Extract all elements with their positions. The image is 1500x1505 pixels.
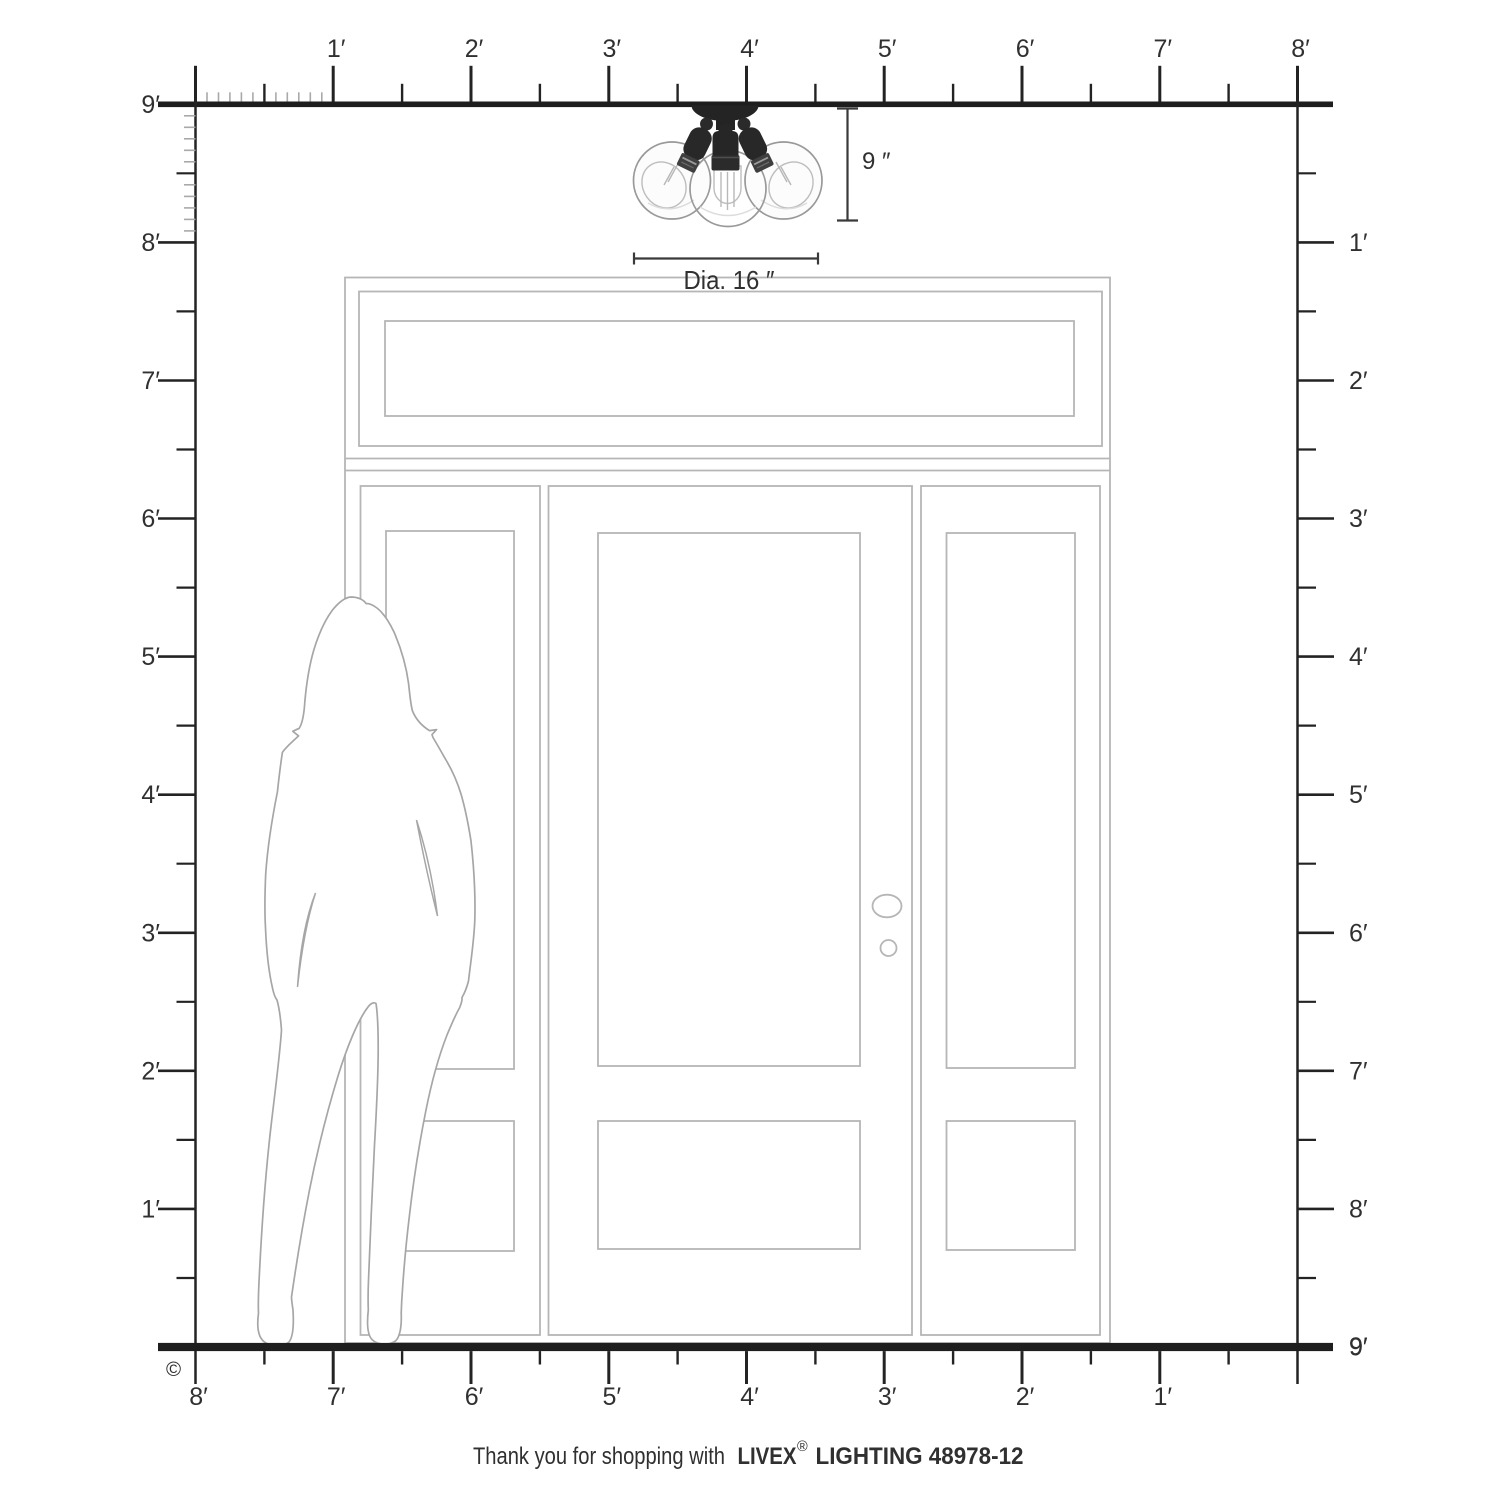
svg-text:9 ″: 9 ″ bbox=[862, 148, 891, 175]
svg-text:1′: 1′ bbox=[141, 1195, 160, 1223]
svg-text:7′: 7′ bbox=[1349, 1057, 1368, 1085]
svg-text:7′: 7′ bbox=[1154, 35, 1173, 63]
svg-text:7′: 7′ bbox=[141, 367, 160, 395]
svg-text:5′: 5′ bbox=[878, 35, 897, 63]
svg-text:6′: 6′ bbox=[1349, 919, 1368, 947]
svg-text:5′: 5′ bbox=[1349, 781, 1368, 809]
svg-text:9′: 9′ bbox=[1349, 1333, 1368, 1361]
svg-text:6′: 6′ bbox=[1016, 35, 1035, 63]
svg-text:1′: 1′ bbox=[1349, 229, 1368, 257]
svg-text:3′: 3′ bbox=[603, 35, 622, 63]
svg-text:®: ® bbox=[797, 1439, 808, 1455]
svg-text:2′: 2′ bbox=[465, 35, 484, 63]
svg-text:4′: 4′ bbox=[740, 1383, 759, 1411]
svg-text:5′: 5′ bbox=[141, 643, 160, 671]
svg-text:5′: 5′ bbox=[603, 1383, 622, 1411]
svg-text:8′: 8′ bbox=[1291, 35, 1310, 63]
svg-text:3′: 3′ bbox=[141, 919, 160, 947]
svg-text:8′: 8′ bbox=[189, 1383, 208, 1411]
svg-text:9′: 9′ bbox=[141, 91, 160, 119]
svg-text:LIGHTING 48978-12: LIGHTING 48978-12 bbox=[816, 1443, 1024, 1470]
svg-text:©: © bbox=[166, 1358, 181, 1381]
svg-text:7′: 7′ bbox=[327, 1383, 346, 1411]
svg-text:2′: 2′ bbox=[1016, 1383, 1035, 1411]
svg-text:4′: 4′ bbox=[141, 781, 160, 809]
svg-text:8′: 8′ bbox=[1349, 1195, 1368, 1223]
svg-text:Dia. 16 ″: Dia. 16 ″ bbox=[684, 265, 775, 295]
svg-text:6′: 6′ bbox=[465, 1383, 484, 1411]
svg-text:2′: 2′ bbox=[141, 1057, 160, 1085]
svg-text:1′: 1′ bbox=[327, 35, 346, 63]
svg-text:3′: 3′ bbox=[878, 1383, 897, 1411]
svg-text:3′: 3′ bbox=[1349, 505, 1368, 533]
svg-text:4′: 4′ bbox=[740, 35, 759, 63]
svg-text:LIVEX: LIVEX bbox=[738, 1443, 798, 1470]
svg-text:2′: 2′ bbox=[1349, 367, 1368, 395]
svg-text:1′: 1′ bbox=[1154, 1383, 1173, 1411]
svg-text:Thank you for shopping with: Thank you for shopping with bbox=[473, 1443, 725, 1470]
svg-text:4′: 4′ bbox=[1349, 643, 1368, 671]
svg-text:6′: 6′ bbox=[141, 505, 160, 533]
svg-text:8′: 8′ bbox=[141, 229, 160, 257]
